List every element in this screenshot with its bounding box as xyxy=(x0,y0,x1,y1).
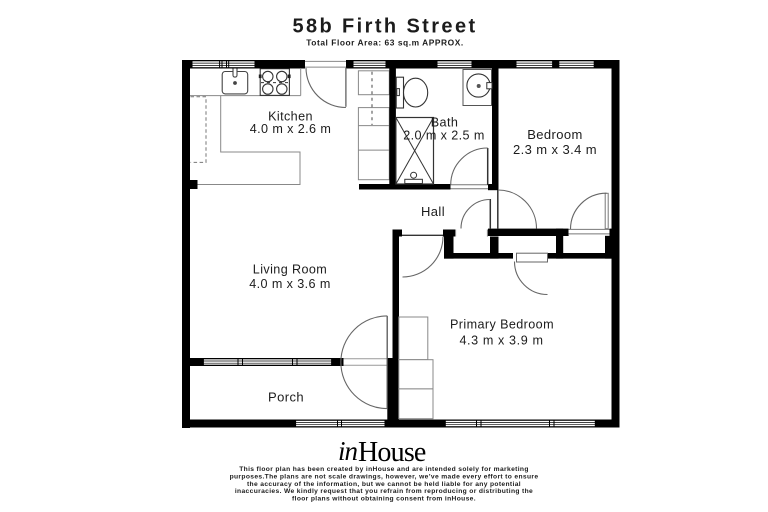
svg-text:4.0 m x 2.6 m: 4.0 m x 2.6 m xyxy=(250,122,332,136)
svg-text:in: in xyxy=(338,436,358,466)
svg-text:Primary Bedroom: Primary Bedroom xyxy=(450,318,554,332)
svg-text:House: House xyxy=(358,437,426,468)
svg-text:purposes.The plans are not sca: purposes.The plans are not scale drawing… xyxy=(230,473,539,480)
svg-text:4.3 m x 3.9 m: 4.3 m x 3.9 m xyxy=(459,334,543,348)
svg-text:Hall: Hall xyxy=(421,204,445,219)
svg-text:Bedroom: Bedroom xyxy=(527,127,583,142)
svg-text:the accuracy of the informatio: the accuracy of the information, but we … xyxy=(247,481,521,488)
svg-text:floor plans without obtaining: floor plans without obtaining consent fr… xyxy=(292,496,476,503)
svg-text:This floor plan has been creat: This floor plan has been created by inHo… xyxy=(239,466,529,473)
svg-text:Total Floor Area: 63 sq.m APPR: Total Floor Area: 63 sq.m APPROX. xyxy=(306,37,463,47)
svg-text:2.0 m x 2.5 m: 2.0 m x 2.5 m xyxy=(403,129,485,143)
svg-text:inaccuracies. We kindly reques: inaccuracies. We kindly request that you… xyxy=(235,488,533,495)
svg-text:4.0 m x 3.6 m: 4.0 m x 3.6 m xyxy=(249,277,331,291)
svg-text:Living Room: Living Room xyxy=(253,263,327,277)
svg-text:Porch: Porch xyxy=(268,390,304,405)
svg-text:58b Firth Street: 58b Firth Street xyxy=(292,16,477,38)
svg-text:Bath: Bath xyxy=(431,116,459,130)
svg-text:2.3 m x 3.4 m: 2.3 m x 3.4 m xyxy=(513,142,597,157)
